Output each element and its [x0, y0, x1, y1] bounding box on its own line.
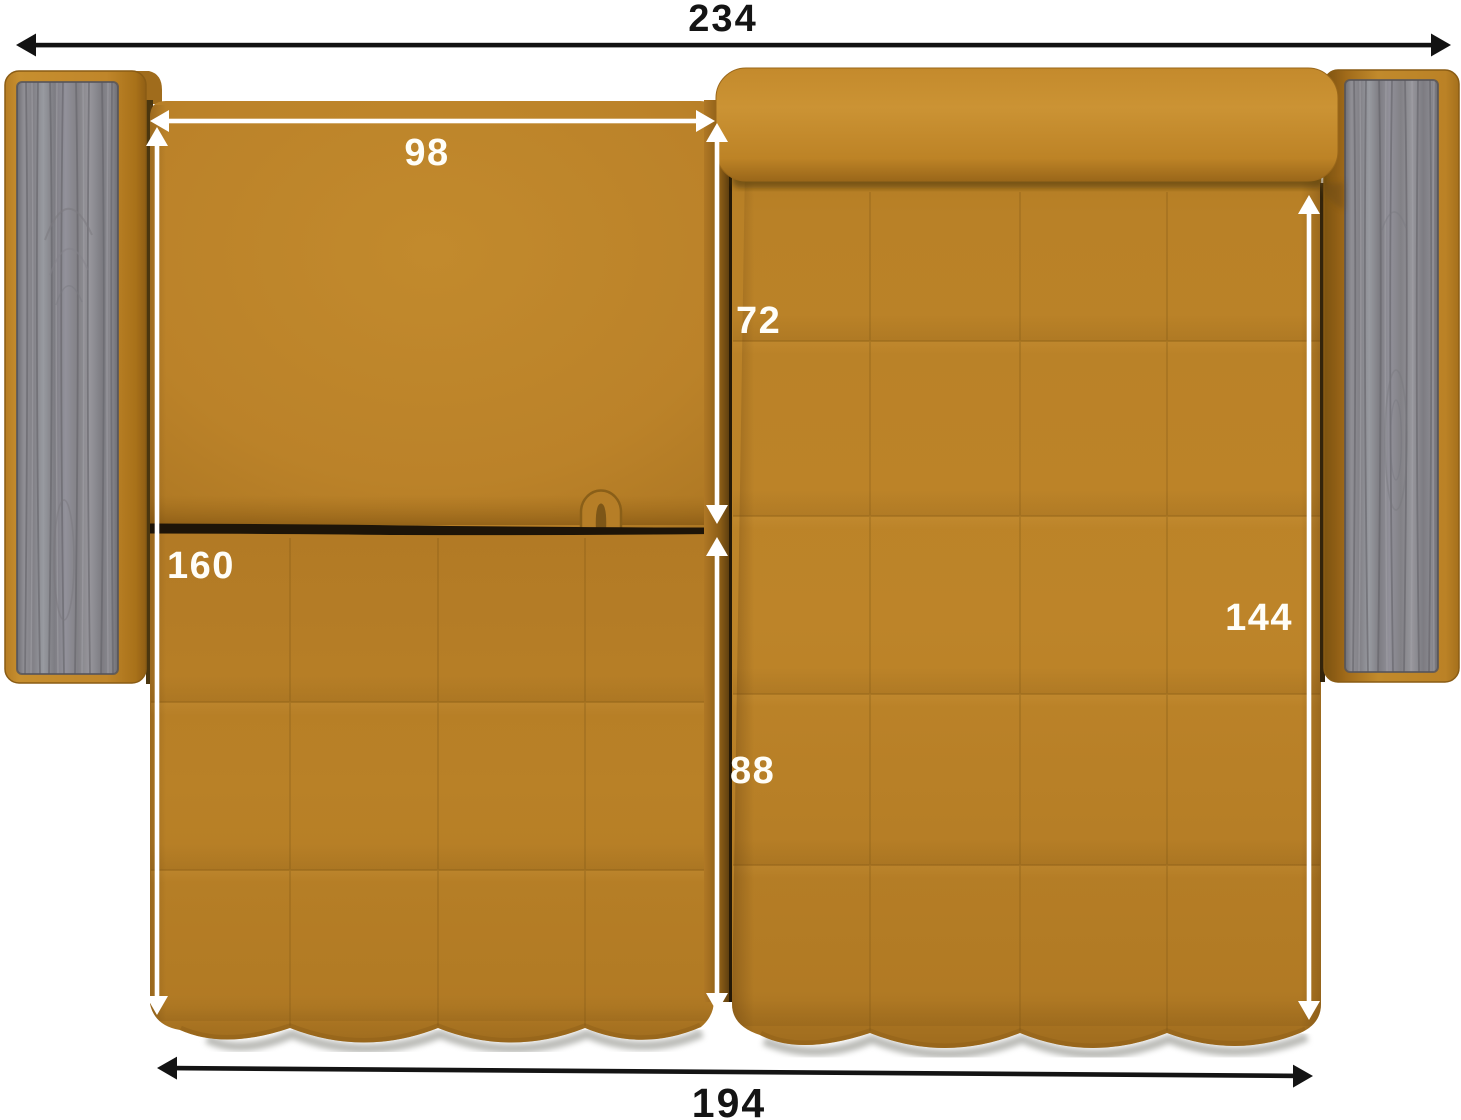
svg-text:160: 160: [167, 545, 235, 587]
svg-text:98: 98: [404, 132, 449, 174]
svg-text:234: 234: [688, 0, 757, 40]
svg-text:144: 144: [1225, 597, 1293, 639]
svg-text:194: 194: [692, 1080, 766, 1120]
svg-text:72: 72: [736, 300, 781, 342]
svg-text:88: 88: [730, 750, 775, 792]
